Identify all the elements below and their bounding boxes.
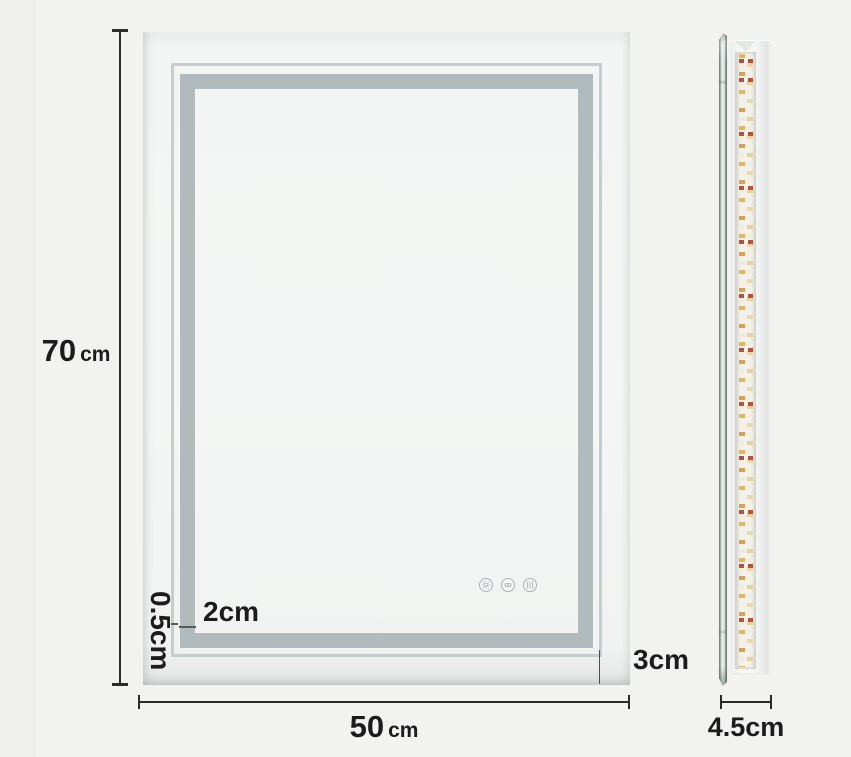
led-strip-red-left (739, 54, 744, 667)
height-unit: cm (80, 343, 110, 366)
band-width-label: 2cm (203, 596, 259, 628)
touch-button-brightness (479, 578, 493, 592)
touch-button-color-temp (501, 578, 515, 592)
depth-dimension-label: 4.5cm (702, 712, 790, 743)
frosted-led-band (180, 74, 593, 648)
led-strip-channel (735, 52, 756, 669)
height-dimension-line (119, 30, 121, 685)
edge-margin-label: 3cm (633, 644, 689, 676)
width-dimension-line (138, 701, 630, 703)
height-dimension-label: 70cm (38, 333, 114, 369)
color-temp-icon (503, 580, 513, 590)
edge-margin-tick (599, 650, 600, 684)
brightness-icon (481, 580, 491, 590)
background-seam (0, 0, 35, 757)
width-dimension-label: 50cm (138, 709, 630, 745)
mirror-front-view (143, 32, 630, 685)
led-strip-red-right (748, 54, 753, 667)
side-view-glass-edge (719, 33, 727, 686)
defog-icon (525, 580, 535, 590)
diagram-canvas: 70cm 50cm 3cm 2cm 0.5cm 4.5cm (0, 0, 851, 757)
panel-top-notch (735, 41, 756, 52)
touch-control-panel (479, 578, 537, 592)
width-unit: cm (388, 719, 418, 742)
height-value: 70 (42, 333, 76, 368)
line-width-label: 0.5cm (144, 591, 176, 669)
width-value: 50 (350, 709, 384, 744)
touch-button-defog (523, 578, 537, 592)
side-view-back-panel (731, 40, 770, 673)
band-width-tick (179, 626, 196, 628)
depth-dimension-line (720, 701, 772, 703)
